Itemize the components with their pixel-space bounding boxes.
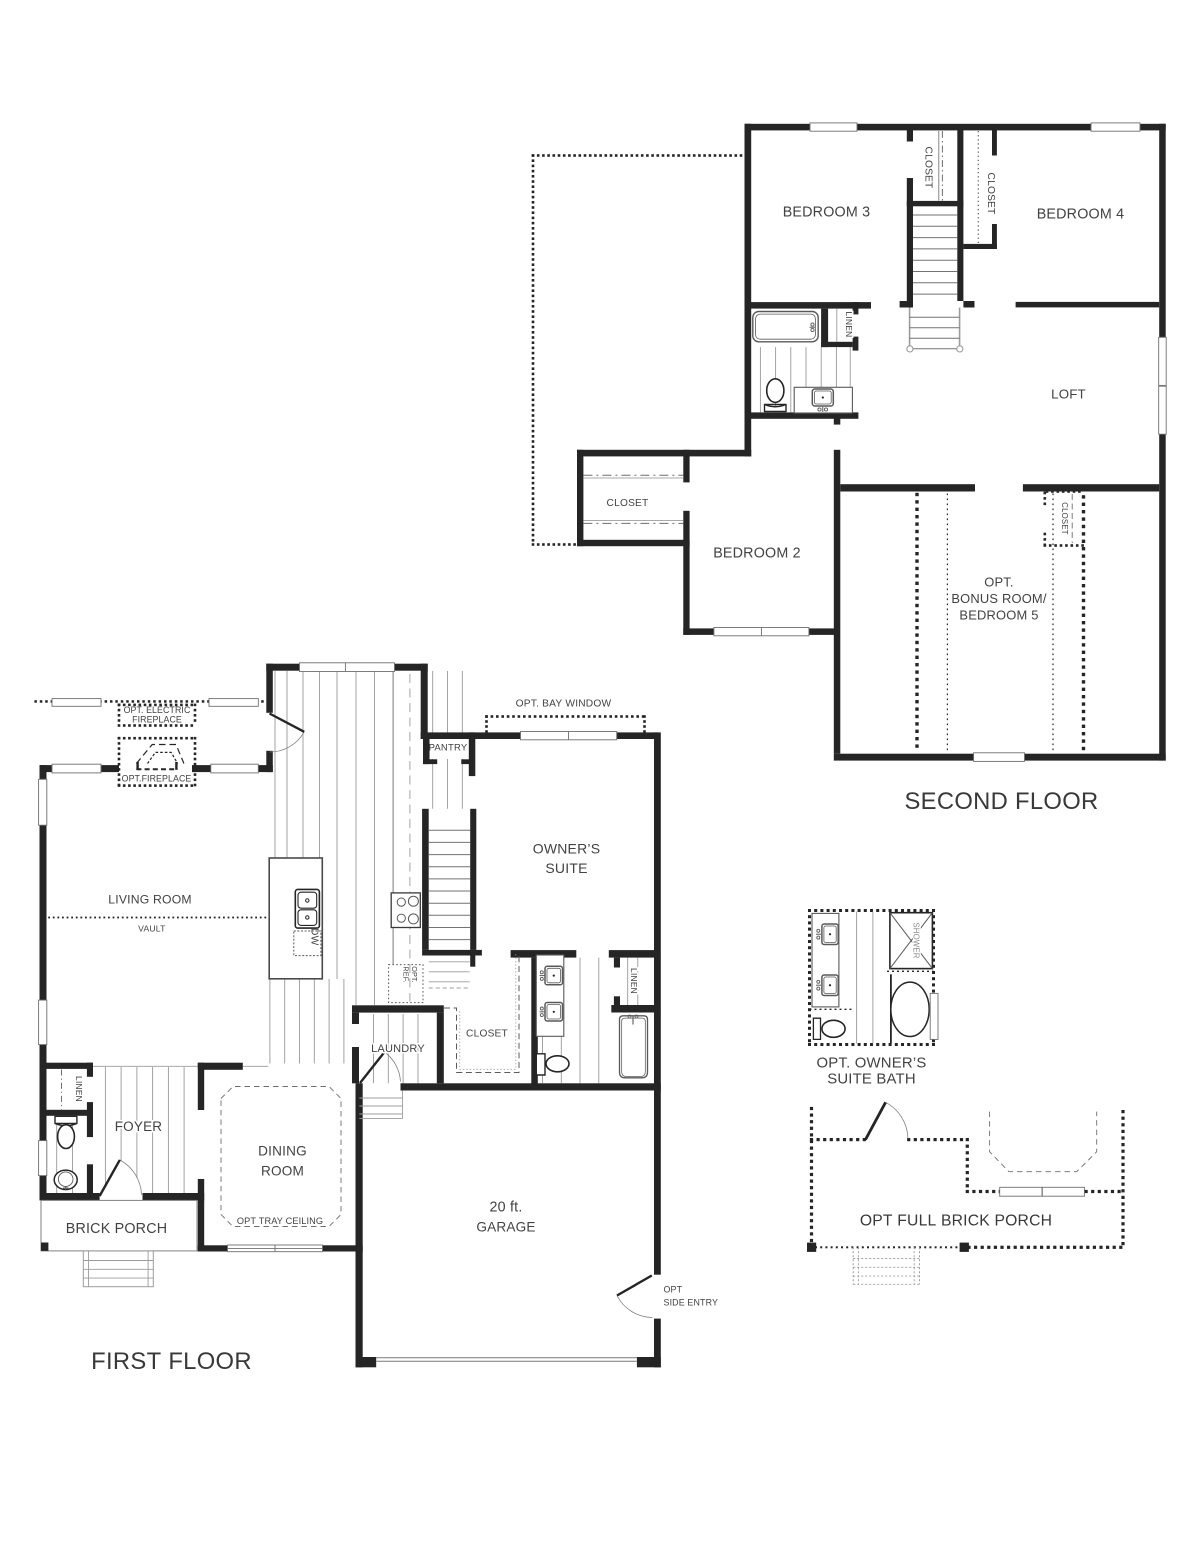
svg-text:CLOSET: CLOSET: [466, 1029, 508, 1040]
svg-text:BONUS ROOM/: BONUS ROOM/: [951, 591, 1047, 606]
svg-text:OPT. OWNER’S: OPT. OWNER’S: [817, 1056, 927, 1072]
svg-text:CLOSET: CLOSET: [1060, 502, 1069, 534]
svg-text:REF.: REF.: [402, 966, 411, 982]
svg-text:OPT. BAY WINDOW: OPT. BAY WINDOW: [516, 699, 612, 710]
svg-text:GARAGE: GARAGE: [476, 1220, 535, 1235]
svg-text:LINEN: LINEN: [629, 968, 639, 994]
svg-text:FOYER: FOYER: [115, 1119, 163, 1134]
svg-text:LOFT: LOFT: [1051, 387, 1086, 402]
svg-text:BEDROOM 3: BEDROOM 3: [783, 205, 871, 221]
svg-text:BEDROOM 4: BEDROOM 4: [1037, 207, 1125, 223]
svg-text:LAUNDRY: LAUNDRY: [371, 1043, 425, 1055]
svg-text:FIRST FLOOR: FIRST FLOOR: [91, 1348, 252, 1375]
svg-text:SHOWER: SHOWER: [912, 922, 921, 958]
svg-text:OPT.: OPT.: [984, 575, 1013, 590]
svg-text:SIDE ENTRY: SIDE ENTRY: [664, 1298, 719, 1308]
svg-text:BEDROOM 2: BEDROOM 2: [713, 546, 801, 562]
svg-text:OPT FULL BRICK PORCH: OPT FULL BRICK PORCH: [860, 1213, 1052, 1230]
svg-text:DINING: DINING: [258, 1144, 307, 1159]
svg-text:SUITE BATH: SUITE BATH: [827, 1072, 916, 1088]
svg-text:PANTRY: PANTRY: [429, 743, 468, 754]
svg-text:OPT. ELECTRIC: OPT. ELECTRIC: [124, 705, 191, 715]
svg-text:OPT TRAY CEILING: OPT TRAY CEILING: [237, 1216, 323, 1226]
svg-text:ROOM: ROOM: [261, 1164, 304, 1179]
svg-text:LIVING ROOM: LIVING ROOM: [108, 893, 191, 907]
svg-text:OPT: OPT: [664, 1285, 683, 1295]
svg-text:LINEN: LINEN: [844, 312, 854, 338]
svg-text:OPT.FIREPLACE: OPT.FIREPLACE: [122, 773, 192, 783]
svg-text:VAULT: VAULT: [138, 924, 166, 934]
svg-text:CLOSET: CLOSET: [607, 498, 649, 509]
svg-text:LINEN: LINEN: [74, 1076, 84, 1102]
svg-text:BEDROOM 5: BEDROOM 5: [959, 608, 1038, 623]
svg-text:OWNER’S: OWNER’S: [533, 841, 601, 857]
svg-text:SECOND FLOOR: SECOND FLOOR: [905, 788, 1099, 815]
svg-text:20 ft.: 20 ft.: [490, 1200, 523, 1216]
svg-text:CLOSET: CLOSET: [923, 147, 934, 189]
svg-text:BRICK PORCH: BRICK PORCH: [66, 1221, 168, 1237]
svg-text:OPT.: OPT.: [410, 966, 419, 983]
svg-text:SUITE: SUITE: [545, 860, 587, 876]
svg-text:FIREPLACE: FIREPLACE: [132, 714, 182, 724]
svg-text:DW: DW: [309, 928, 320, 946]
svg-text:CLOSET: CLOSET: [985, 173, 996, 215]
